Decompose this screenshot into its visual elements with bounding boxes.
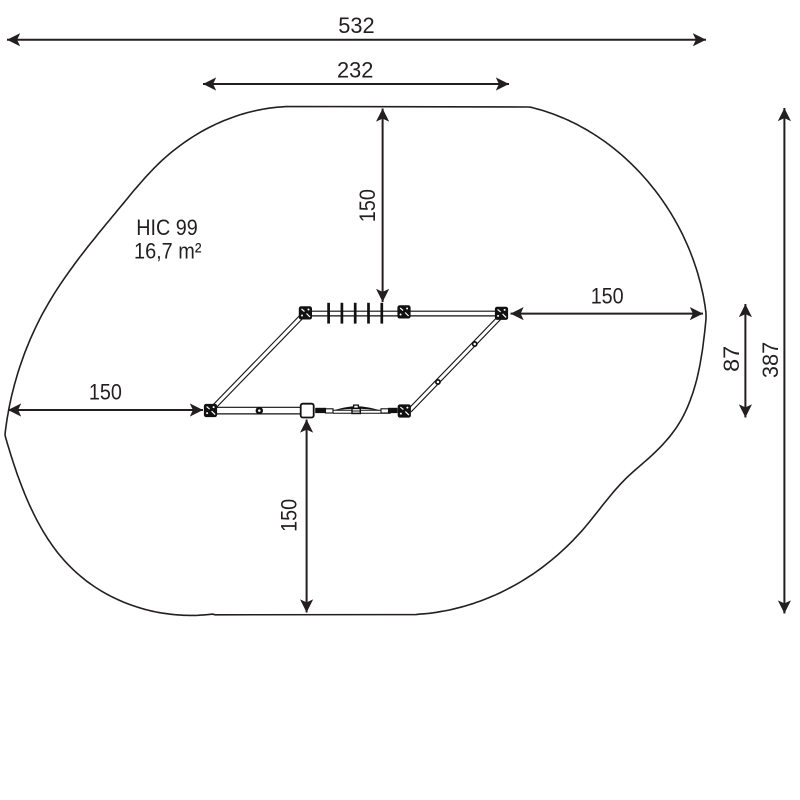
svg-text:150: 150	[89, 380, 122, 405]
svg-text:16,7 m²: 16,7 m²	[134, 239, 202, 264]
svg-text:387: 387	[758, 342, 783, 378]
svg-text:87: 87	[719, 346, 744, 372]
svg-text:HIC 99: HIC 99	[136, 215, 198, 240]
svg-text:150: 150	[591, 284, 624, 309]
svg-text:232: 232	[337, 58, 373, 83]
svg-text:532: 532	[338, 13, 374, 38]
svg-text:150: 150	[355, 189, 380, 222]
svg-text:150: 150	[277, 499, 302, 532]
